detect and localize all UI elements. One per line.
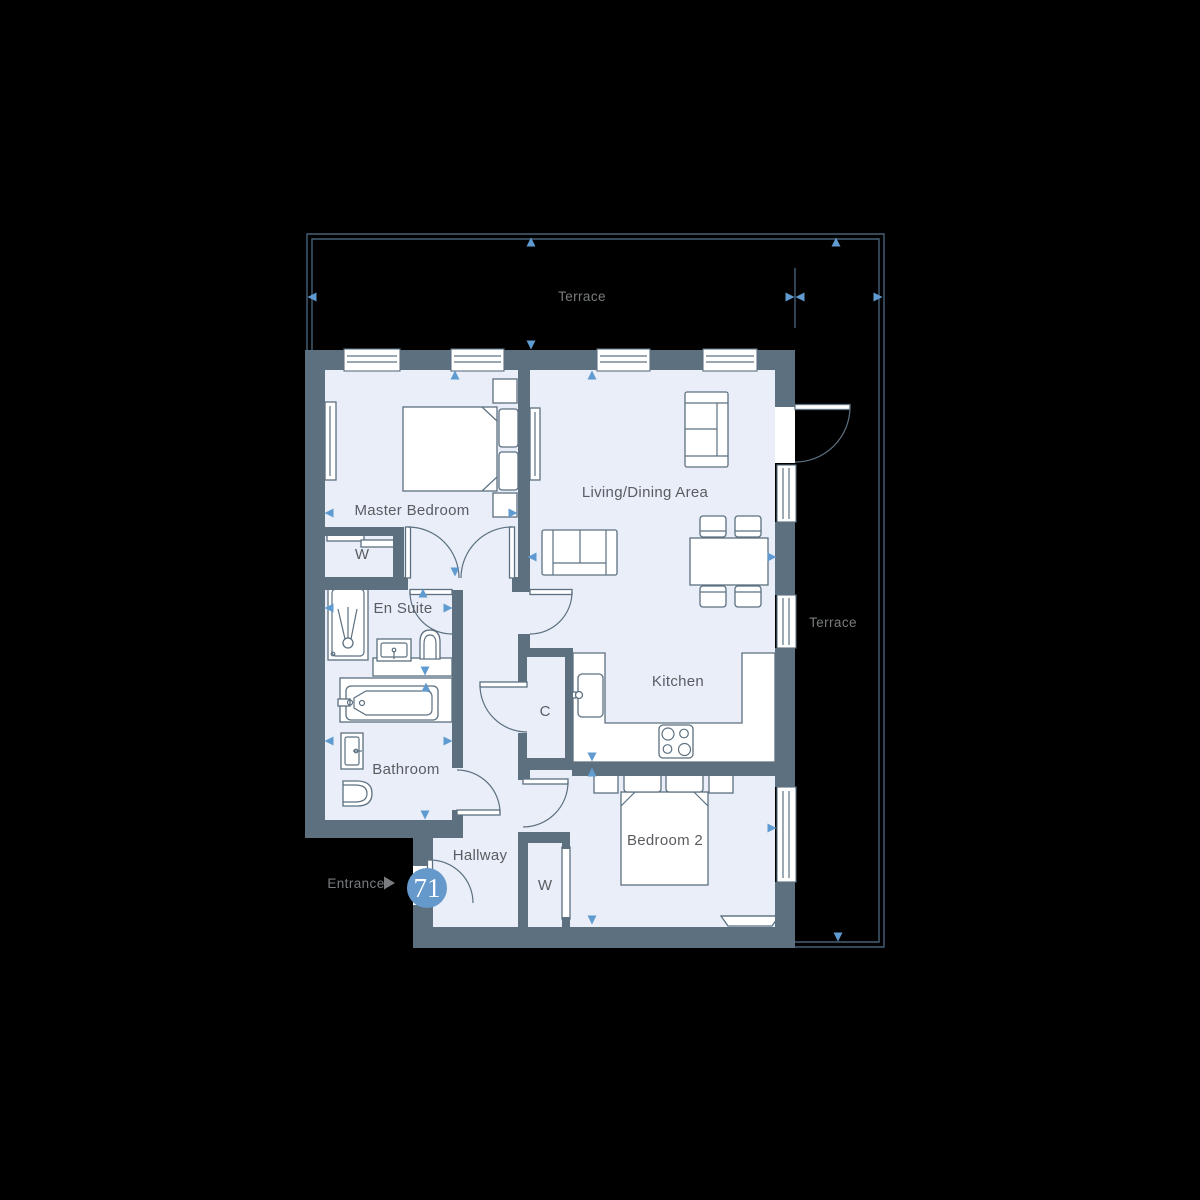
bathroom-label: Bathroom [372, 761, 439, 778]
window-top-3 [597, 349, 650, 371]
ensuite-shower [328, 585, 368, 660]
wardrobe-bedroom2-label: W [538, 877, 553, 894]
bedroom2-shelf [721, 916, 779, 926]
hallway-label: Hallway [453, 847, 508, 864]
window-top-2 [451, 349, 504, 371]
living-dining-label: Living/Dining Area [582, 484, 709, 501]
window-right-1 [777, 465, 796, 522]
terrace-door [795, 405, 850, 463]
sofa-horizontal [542, 530, 617, 575]
bathroom-sink [341, 733, 363, 769]
window-top-1 [344, 349, 400, 371]
window-right-2 [777, 595, 796, 648]
terrace-top-label: Terrace [558, 289, 606, 304]
entrance-label: Entrance [327, 876, 384, 891]
bedside-table-1 [493, 379, 517, 403]
master-radiator [325, 402, 336, 480]
terrace-door-threshold [775, 407, 795, 463]
ensuite-sink [377, 639, 411, 661]
bathroom-toilet [343, 781, 372, 806]
kitchen-label: Kitchen [652, 673, 704, 690]
sofa-vertical [685, 392, 728, 467]
ensuite-toilet [420, 630, 440, 659]
unit-number: 71 [414, 873, 441, 903]
floorplan-page: Terrace Terrace Master Bedroom Living/Di… [0, 0, 1200, 1200]
terrace-right-label: Terrace [809, 615, 857, 630]
window-bedroom2 [777, 787, 796, 882]
entrance-arrow-icon [384, 877, 395, 890]
bedroom2-label: Bedroom 2 [627, 832, 703, 849]
wardrobe2-door-panel [562, 847, 570, 919]
window-top-4 [703, 349, 757, 371]
wardrobe-master-label: W [355, 546, 370, 563]
floorplan-svg: Terrace Terrace Master Bedroom Living/Di… [0, 0, 1200, 1200]
ensuite-label: En Suite [373, 600, 432, 617]
living-radiator [530, 408, 540, 480]
hob [659, 725, 693, 758]
master-bedroom-label: Master Bedroom [354, 502, 469, 519]
unit-badge: 71 [407, 868, 447, 908]
cupboard-label: C [540, 703, 551, 720]
